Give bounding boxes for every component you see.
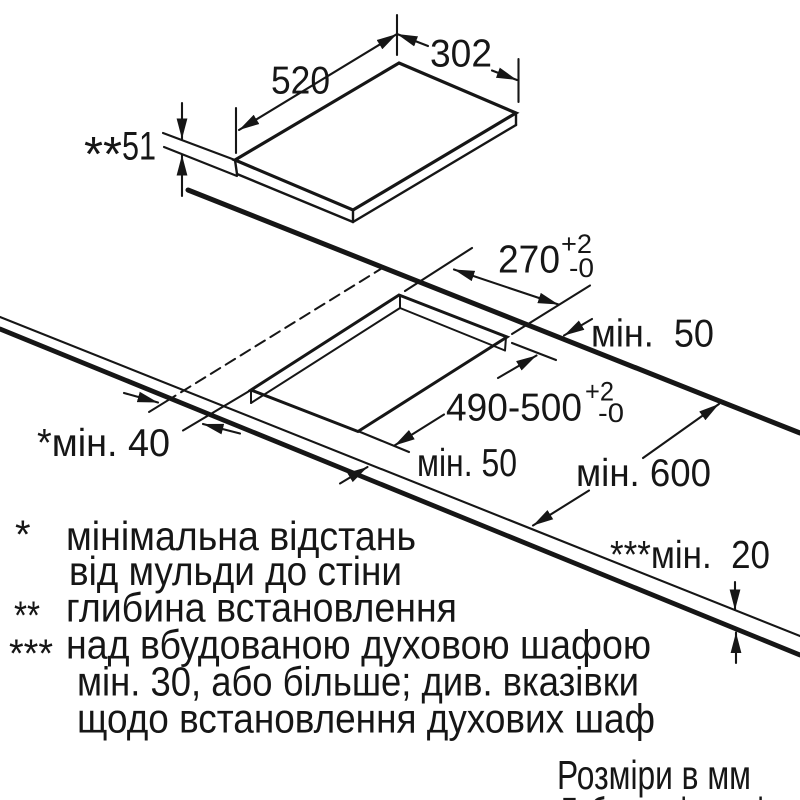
svg-text:520: 520 — [271, 60, 330, 103]
svg-text:490-500: 490-500 — [446, 387, 582, 430]
svg-text:*: * — [15, 513, 31, 557]
svg-text:мін. 600: мін. 600 — [576, 452, 711, 495]
svg-text:*мін. 40: *мін. 40 — [37, 422, 170, 465]
svg-text:мін. 50: мін. 50 — [417, 442, 517, 485]
svg-text:щодо встановлення духових шаф: щодо встановлення духових шаф — [77, 696, 655, 742]
svg-text:**: ** — [84, 128, 122, 182]
svg-text:-0: -0 — [598, 398, 624, 428]
svg-text:51: 51 — [122, 125, 156, 169]
svg-text:270: 270 — [498, 239, 560, 282]
svg-text:***: *** — [9, 632, 53, 676]
svg-text:мін. 50: мін. 50 — [591, 313, 714, 356]
svg-text:Габаритні розміри: Габаритні розміри — [561, 789, 795, 800]
svg-text:-0: -0 — [569, 253, 594, 283]
svg-text:***мін. 20: ***мін. 20 — [610, 534, 770, 577]
svg-text:302: 302 — [430, 33, 492, 76]
